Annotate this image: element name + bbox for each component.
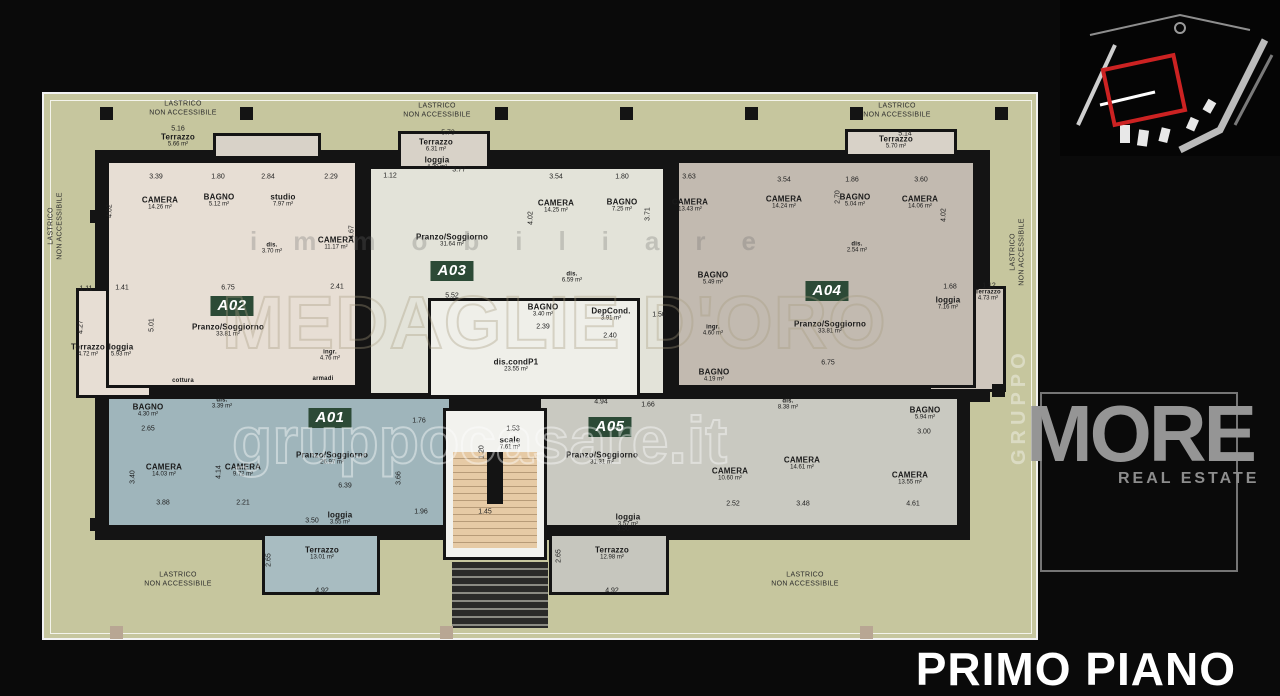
room-label: Terrazzo4.73 m²: [975, 290, 1001, 303]
room-label: studio7.97 m²: [270, 194, 295, 209]
dimension-label: 4.61: [906, 501, 920, 508]
room-label: BAGNO5.04 m²: [840, 194, 871, 209]
lastrico-label: LASTRICO NON ACCESSIBILE: [144, 571, 212, 589]
apartment-badge-a01: A01: [308, 408, 351, 428]
room-label: Terrazzo13.01 m²: [305, 547, 339, 562]
dimension-label: 6.75: [221, 285, 235, 292]
room-label: Terrazzo5.70 m²: [879, 136, 913, 151]
lastrico-label: LASTRICO NON ACCESSIBILE: [149, 100, 217, 118]
floor-plan-page: Terrazzo5.66 m²CAMERA14.26 m²BAGNO5.12 m…: [0, 0, 1280, 696]
dimension-label: 3.54: [549, 174, 563, 181]
dimension-label: 2.84: [261, 174, 275, 181]
room-label: BAGNO3.40 m²: [528, 304, 559, 319]
room-label: BAGNO5.94 m²: [910, 407, 941, 422]
dimension-label: 4.94: [594, 399, 608, 406]
room-label: Terrazzo12.98 m²: [595, 547, 629, 562]
room-label: CAMERA14.25 m²: [538, 200, 574, 215]
room-label: loggia5.93 m²: [109, 344, 134, 359]
lastrico-label: LASTRICO NON ACCESSIBILE: [771, 571, 839, 589]
dimension-label: 2.70: [835, 190, 842, 204]
room-label: Pranzo/Soggiorno33.81 m²: [794, 321, 866, 336]
room-label: Pranzo/Soggiorno31.64 m²: [416, 234, 488, 249]
dimension-label: 4.92: [315, 588, 329, 595]
dimension-label: 5.14: [898, 131, 912, 138]
room-label: dis.8.38 m²: [778, 399, 798, 412]
room-label: ingr.4.60 m²: [703, 325, 723, 338]
apartment-badge-a02: A02: [210, 296, 253, 316]
dimension-label: 1.76: [412, 418, 426, 425]
room-label: dis.6.59 m²: [562, 272, 582, 285]
room-label: CAMERA11.17 m²: [318, 237, 354, 252]
room-label: BAGNO7.25 m²: [607, 199, 638, 214]
dimension-label: 6.75: [821, 360, 835, 367]
room-label: Terrazzo6.31 m²: [419, 139, 453, 154]
dimension-label: 3.60: [914, 177, 928, 184]
room-label: CAMERA14.24 m²: [766, 196, 802, 211]
dimension-label: 3.00: [917, 429, 931, 436]
room-label: CAMERA13.43 m²: [672, 199, 708, 214]
room-label: Terrazzo4.72 m²: [71, 344, 105, 359]
dimension-label: 3.77: [452, 167, 466, 174]
dimension-label: 3.66: [396, 471, 403, 485]
dimension-label: 4.67: [349, 225, 356, 239]
dimension-label: 2.29: [324, 174, 338, 181]
dimension-label: 2.52: [726, 501, 740, 508]
dimension-label: 3.54: [777, 177, 791, 184]
dimension-label: 4.92: [605, 588, 619, 595]
dimension-label: 1.80: [211, 174, 225, 181]
lastrico-label: LASTRICO NON ACCESSIBILE: [1009, 218, 1027, 286]
room-label: armadi: [313, 376, 334, 382]
dimension-label: 1.11: [79, 286, 92, 293]
dimension-label: 5.01: [149, 318, 156, 332]
dimension-label: 1.50: [652, 312, 666, 319]
room-label: Pranzo/Soggiorno31.31 m²: [566, 452, 638, 467]
apartment-badge-a04: A04: [805, 281, 848, 301]
room-label: CAMERA14.06 m²: [902, 196, 938, 211]
dimension-label: 1.96: [414, 509, 428, 516]
dimension-label: 4.02: [941, 208, 948, 222]
room-label: dis.3.70 m²: [262, 243, 282, 256]
dimension-label: 5.73: [441, 130, 455, 137]
dimension-label: 3.71: [645, 207, 652, 221]
room-label: BAGNO4.19 m²: [699, 369, 730, 384]
room-label: CAMERA14.61 m²: [784, 457, 820, 472]
room-label: DepCond.3.91 m²: [591, 308, 630, 323]
dimension-label: 3.88: [156, 500, 170, 507]
lastrico-label: LASTRICO NON ACCESSIBILE: [403, 102, 471, 120]
lastrico-label: LASTRICO NON ACCESSIBILE: [47, 192, 65, 260]
dimension-label: 1.45: [478, 509, 492, 516]
dimension-label: 4.02: [528, 211, 535, 225]
room-label: dis.condP123.55 m²: [494, 359, 539, 374]
page-title: PRIMO PIANO: [916, 642, 1236, 696]
dimension-label: 4.27: [78, 320, 85, 334]
dimension-label: 1.80: [615, 174, 629, 181]
room-label: BAGNO5.12 m²: [204, 194, 235, 209]
dimension-label: 3.39: [149, 174, 163, 181]
dimension-label: 4.02: [107, 204, 114, 218]
dimension-label: 2.65: [141, 426, 155, 433]
room-label: dis.2.54 m²: [847, 242, 867, 255]
room-label: Pranzo/Soggiorno33.81 m²: [192, 324, 264, 339]
dimension-label: 3.63: [682, 174, 696, 181]
dimension-label: 5.16: [171, 126, 185, 133]
dimension-label: 2.41: [330, 284, 344, 291]
dimension-label: 1.41: [115, 285, 129, 292]
room-label: CAMERA13.55 m²: [892, 472, 928, 487]
room-label: CAMERA9.72 m²: [225, 464, 261, 479]
dimension-label: 3.50: [616, 526, 630, 533]
dimension-label: 6.39: [338, 483, 352, 490]
dimension-label: 1.86: [845, 177, 859, 184]
dimension-label: 1.66: [641, 402, 655, 409]
dimension-label: 3.48: [796, 501, 810, 508]
dimension-label: 2.40: [603, 333, 617, 340]
room-label: loggia3.55 m²: [328, 512, 353, 527]
apartment-badge-a05: A05: [588, 417, 631, 437]
dimension-label: 2.39: [536, 324, 550, 331]
dimension-label: 1.53: [506, 426, 520, 433]
dimension-label: 4.14: [216, 465, 223, 479]
room-label: dis.3.39 m²: [212, 398, 232, 411]
dimension-label: 1.12: [982, 283, 996, 290]
room-label: scale7.61 m²: [499, 437, 520, 452]
lastrico-label: LASTRICO NON ACCESSIBILE: [863, 102, 931, 120]
site-plan-inset: [1060, 0, 1280, 156]
room-label: loggia7.16 m²: [936, 297, 961, 312]
dimension-label: 1.12: [383, 173, 397, 180]
room-label: BAGNO5.49 m²: [698, 272, 729, 287]
dimension-label: 1.68: [943, 284, 957, 291]
apartment-badge-a03: A03: [430, 261, 473, 281]
dimension-label: 2.21: [236, 500, 250, 507]
room-label: CAMERA14.26 m²: [142, 197, 178, 212]
room-label: Pranzo/Soggiorno26.97 m²: [296, 452, 368, 467]
dimension-label: 3.40: [130, 470, 137, 484]
dimension-label: 2.65: [266, 553, 273, 567]
room-label: BAGNO4.30 m²: [133, 404, 164, 419]
dimension-label: 3.50: [305, 518, 319, 525]
room-label: Terrazzo5.66 m²: [161, 134, 195, 149]
room-label: cottura: [172, 378, 194, 384]
room-label: CAMERA14.03 m²: [146, 464, 182, 479]
site-plan-drawing: [1060, 0, 1280, 156]
room-label: CAMERA10.60 m²: [712, 468, 748, 483]
dimension-label: 5.52: [445, 293, 459, 300]
dimension-label: 2.65: [556, 549, 563, 563]
room-label: ingr.4.76 m²: [320, 350, 340, 363]
dimension-label: 1.20: [479, 445, 486, 459]
room-label: loggia4.30 m²: [425, 157, 450, 172]
